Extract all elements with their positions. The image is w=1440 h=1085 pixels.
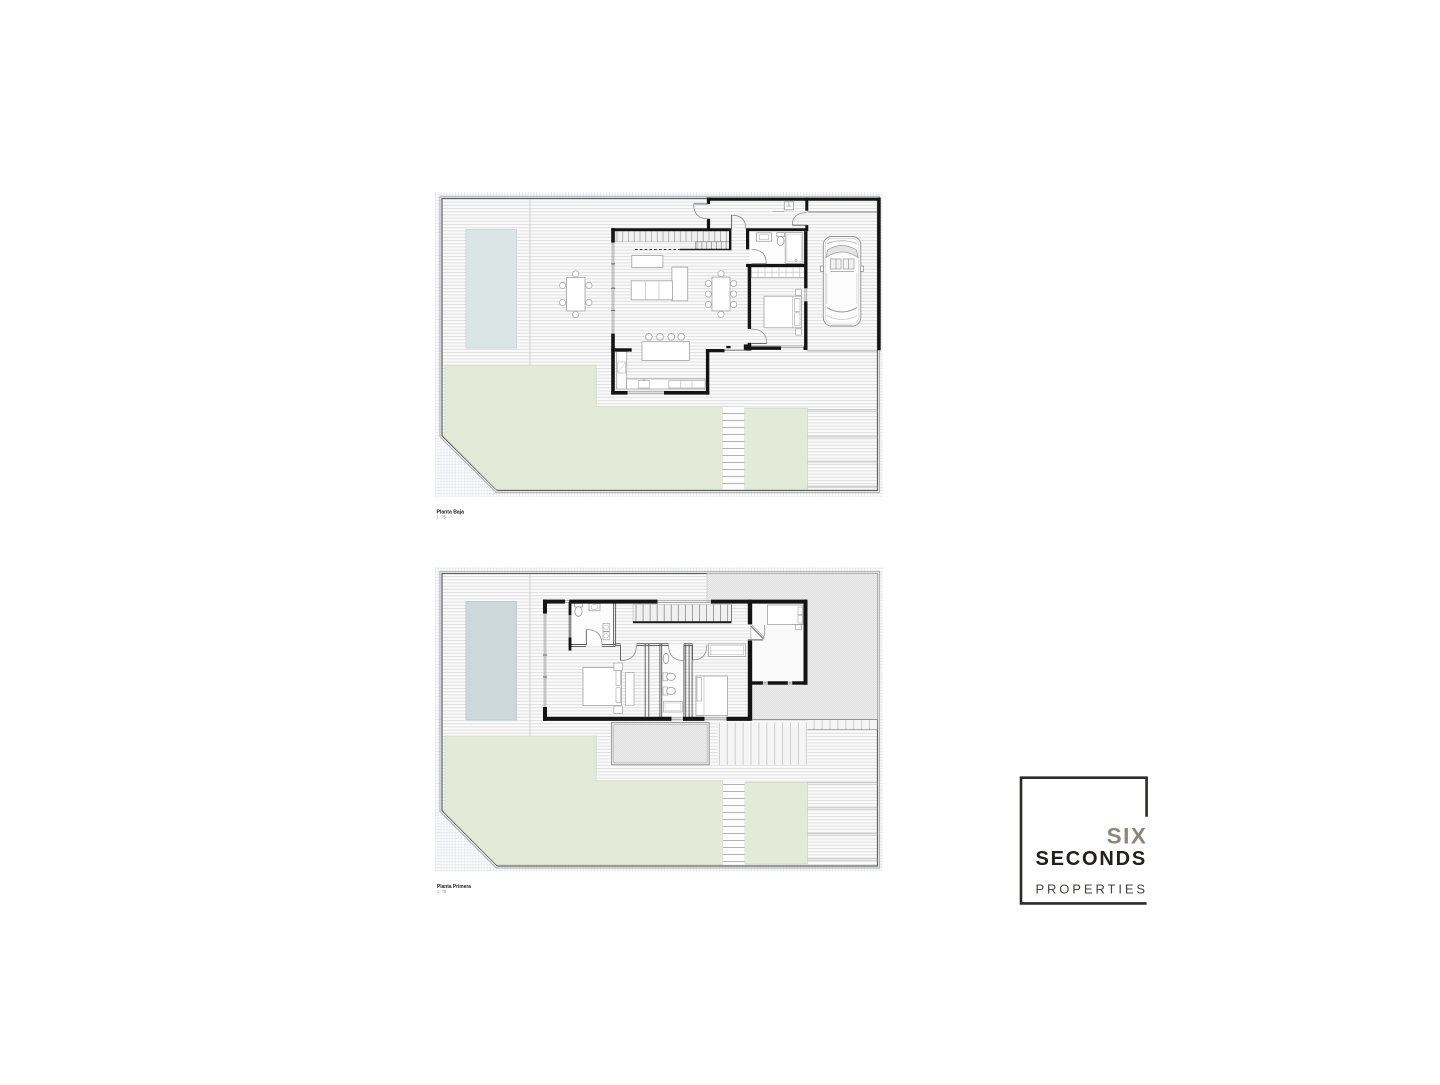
svg-text:1 : 75: 1 : 75 xyxy=(437,889,446,894)
svg-text:SECONDS: SECONDS xyxy=(1035,848,1147,870)
svg-text:PROPERTIES: PROPERTIES xyxy=(1035,882,1148,897)
svg-text:1 : 75: 1 : 75 xyxy=(437,515,446,520)
svg-text:SIX: SIX xyxy=(1107,824,1148,849)
